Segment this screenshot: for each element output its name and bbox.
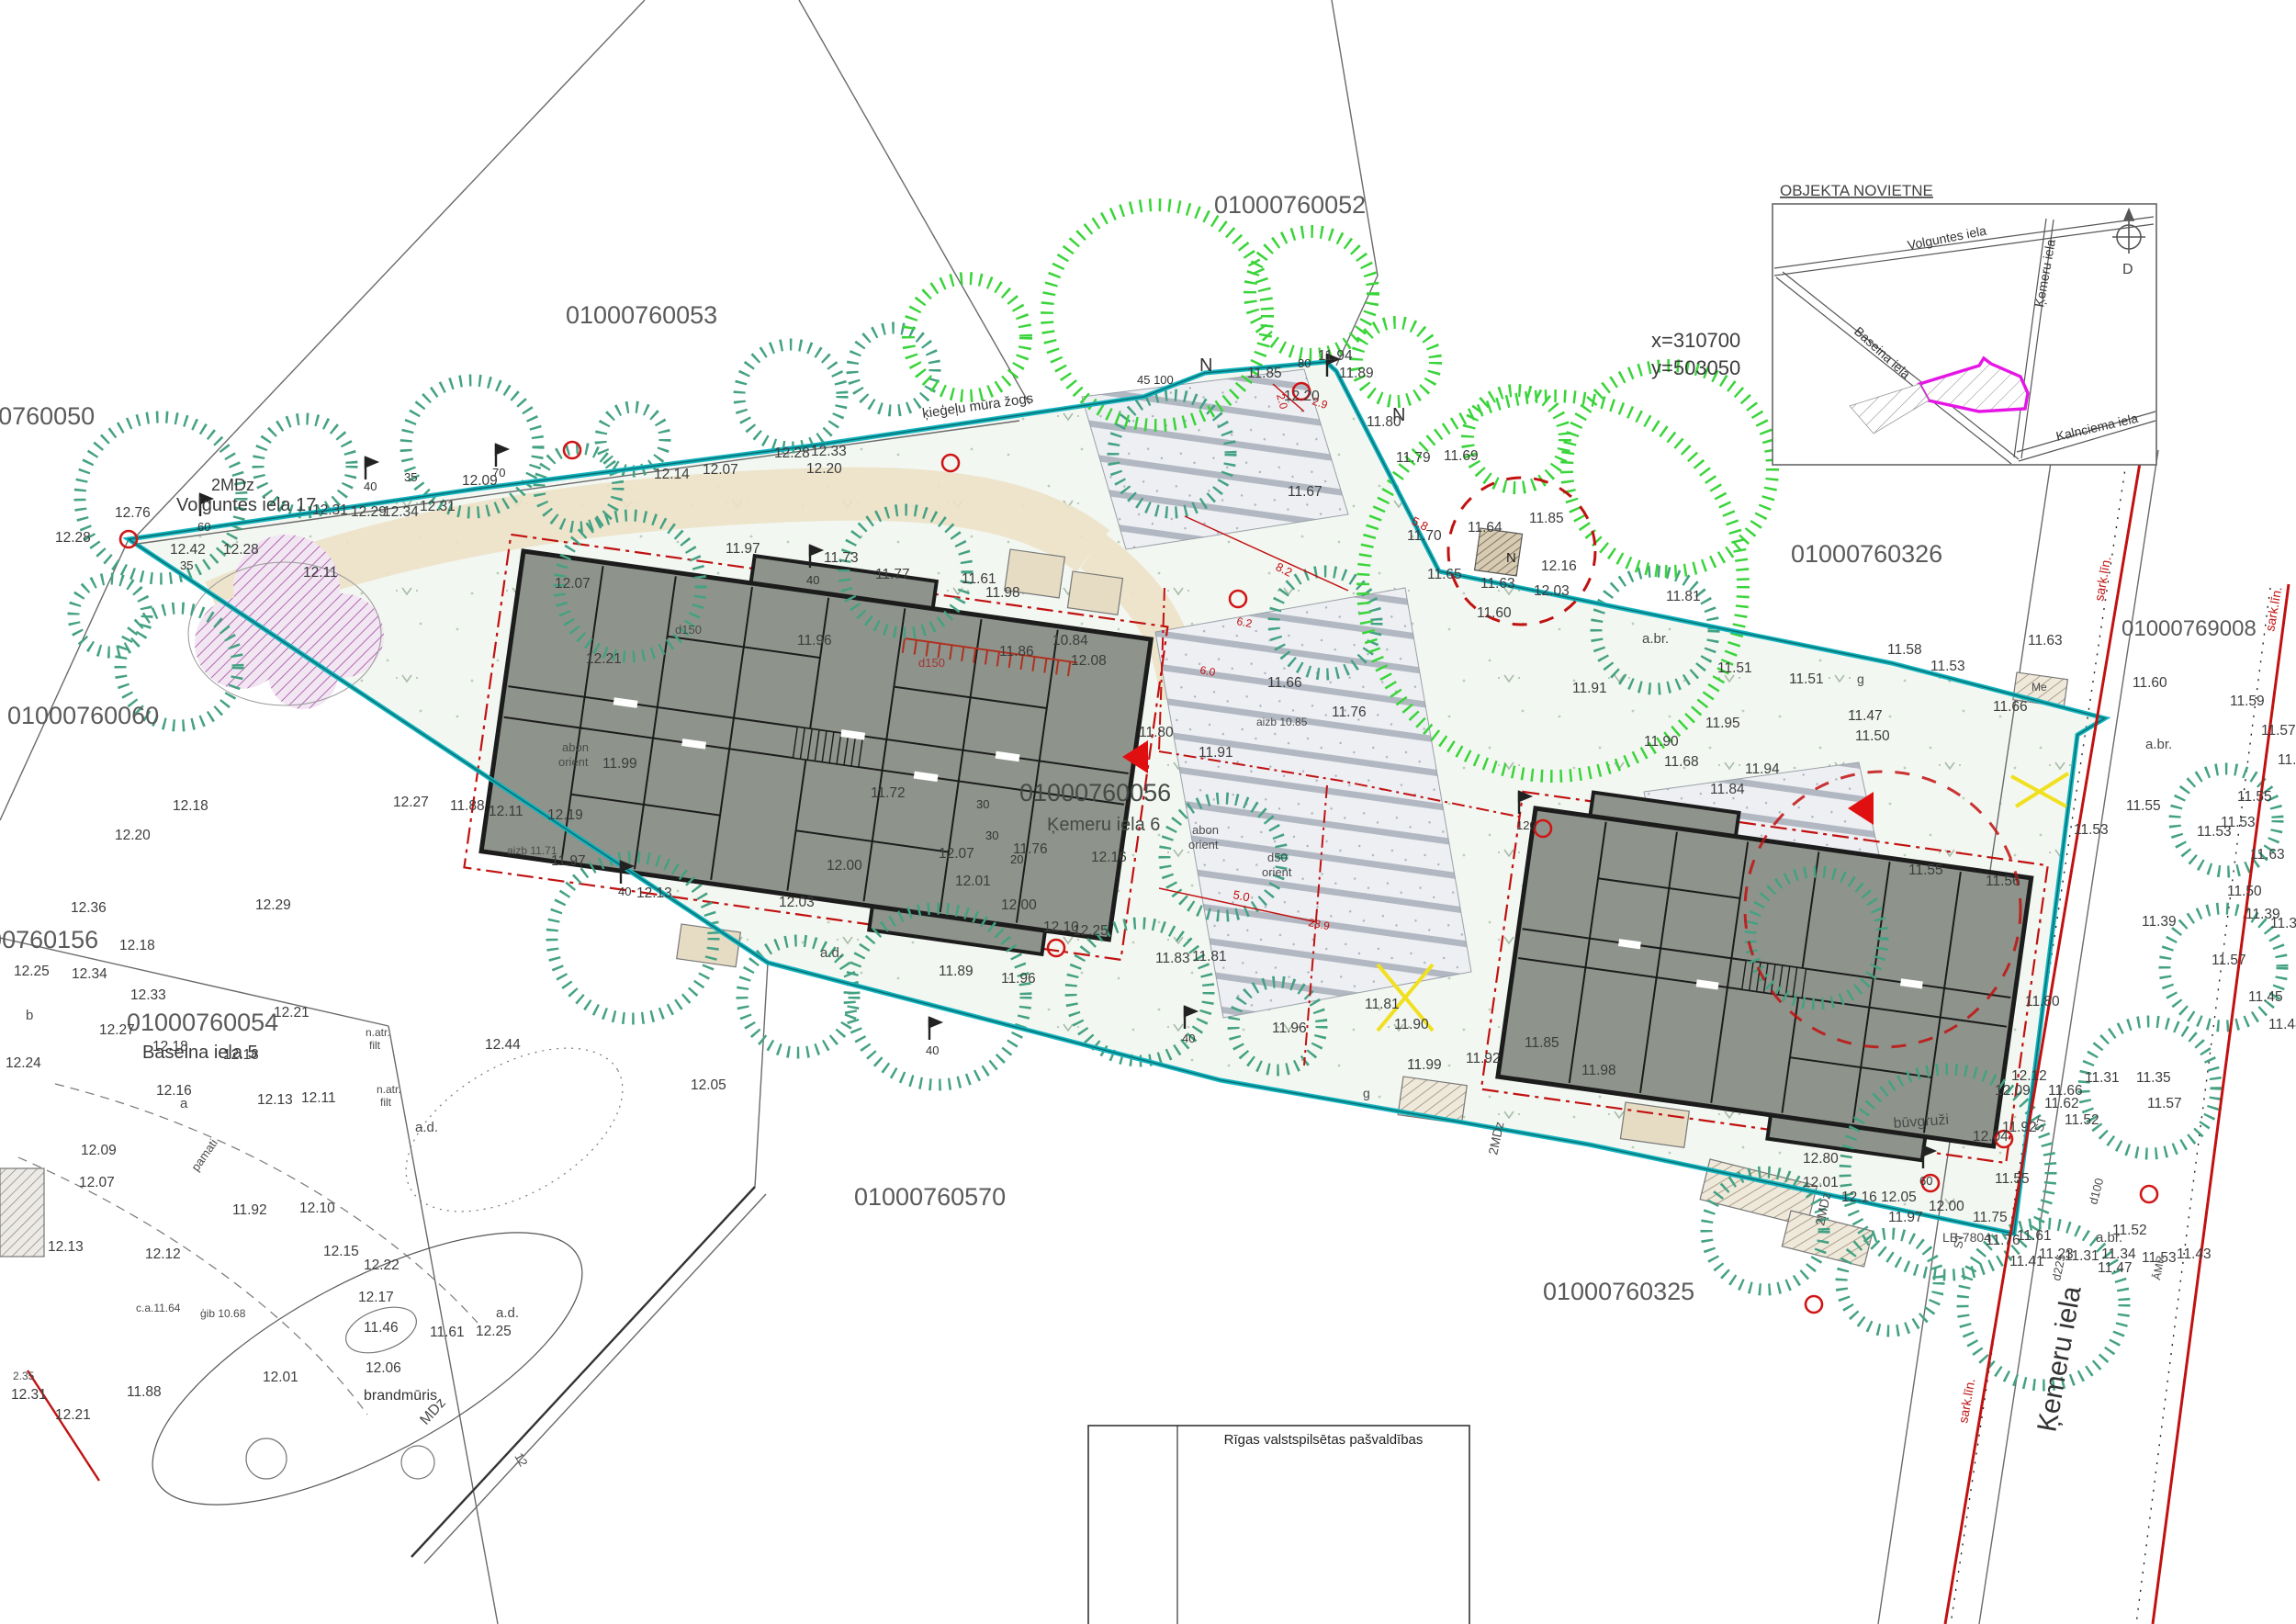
tree-tag-label: 35 <box>404 470 417 484</box>
elevation-label: 12.16 <box>1841 1190 1877 1205</box>
elevation-label: 11.43 <box>2177 1246 2212 1262</box>
elevation-label: 12.31 <box>420 499 456 514</box>
elevation-label: 11.47 <box>2098 1260 2133 1276</box>
tree-tag-label: 45 100 <box>1137 373 1174 387</box>
elevation-label: 12.05 <box>1881 1190 1917 1205</box>
elevation-label: 11.92 <box>1466 1051 1501 1066</box>
elevation-label: 11.83 <box>1155 951 1190 966</box>
main-parcel-address: Ķemeru iela 6 <box>1047 815 1160 835</box>
elevation-label: 11.97 <box>551 853 586 869</box>
elevation-label: 11.57 <box>2147 1096 2182 1111</box>
elevation-label: 12.33 <box>811 444 847 459</box>
elevation-label: 11.66 <box>1993 699 2028 715</box>
elevation-label: 11.51 <box>1717 660 1752 676</box>
annotation-label: 01000760325 <box>1543 1278 1694 1305</box>
elevation-label: 11.60 <box>1477 605 1512 621</box>
elevation-label: 11.57 <box>2261 723 2296 739</box>
elevation-label: 11.47 <box>1848 708 1883 724</box>
elevation-label: 11.67 <box>1288 484 1322 500</box>
elevation-label: 12.07 <box>79 1175 115 1190</box>
annotation-label: d150 <box>675 623 702 637</box>
elevation-label: 12.09 <box>81 1143 117 1158</box>
elevation-label: 12.28 <box>55 530 91 546</box>
elevation-label: 12.01 <box>955 874 991 889</box>
elevation-label: 11.56 <box>1986 874 2020 889</box>
compass-letter: D <box>2122 262 2133 277</box>
elevation-label: 11.64 <box>1468 520 1503 536</box>
elevation-label: 12.25 <box>1073 923 1109 939</box>
annotation-label: N <box>1506 550 1516 566</box>
elevation-label: 12.03 <box>779 895 815 910</box>
annotation-label: 01000769008 <box>2122 616 2257 641</box>
annotation-label: d100 <box>2086 1177 2106 1206</box>
elevation-label: 11.96 <box>1272 1021 1307 1036</box>
elevation-label: 12.76 <box>115 505 151 521</box>
tree-tag-label: 40 <box>364 479 377 493</box>
annotation-label: brandmūris <box>364 1388 437 1404</box>
elevation-label: 11.39 <box>2142 914 2177 930</box>
annotation-label: Me <box>2032 681 2047 694</box>
elevation-label: 11.69 <box>1444 448 1479 464</box>
tree-tag-label: 35 <box>180 558 193 572</box>
annotation-label: aizb 11.71 <box>507 844 557 857</box>
annotation-label: filt <box>380 1096 392 1109</box>
elevation-label: 11.85 <box>1529 511 1564 526</box>
annotation-label: orient <box>1188 838 1219 851</box>
elevation-label: 12.25 <box>476 1324 512 1339</box>
elevation-label: 11.89 <box>1339 366 1374 381</box>
elevation-label: 11.80 <box>1139 725 1174 740</box>
elevation-label: 11.96 <box>797 633 832 648</box>
elevation-label: 12.13 <box>48 1239 84 1255</box>
elevation-label: 11.63 <box>1480 576 1515 592</box>
elevation-label: 11.59 <box>2230 694 2265 709</box>
annotation-label: sark.līn. <box>2091 555 2113 602</box>
elevation-label: 11.72 <box>871 785 906 801</box>
annotation-label: n.atr. <box>366 1026 390 1039</box>
elevation-label: 11.63 <box>2028 633 2063 648</box>
annotation-label: ģib 10.68 <box>200 1307 246 1320</box>
elevation-label: 12.11 <box>489 804 523 819</box>
elevation-label: 12.29 <box>255 897 291 913</box>
elevation-label: 12.33 <box>130 987 166 1003</box>
title-block: Rīgas valstspilsētas pašvaldības <box>1088 1426 1469 1624</box>
elevation-label: 11.53 <box>1930 659 1965 674</box>
elevation-label: 11.89 <box>939 964 974 979</box>
elevation-label: 12.00 <box>1929 1199 1964 1214</box>
elevation-label: 12.17 <box>358 1290 394 1305</box>
survey-coordinates: x=310700 y=503050 <box>1651 329 1740 379</box>
elevation-label: 11.84 <box>1710 782 1745 797</box>
annotation-label: a.d. <box>496 1305 519 1321</box>
elevation-label: 11.65 <box>1427 567 1462 582</box>
elevation-label: 11.53 <box>2221 815 2256 830</box>
tree-tag-label: 40 <box>806 573 819 587</box>
annotation-label: pamati <box>188 1136 220 1174</box>
elevation-label: 11.31 <box>2065 1248 2099 1264</box>
elevation-label: 12.21 <box>274 1005 310 1021</box>
elevation-label: 11.97 <box>1888 1210 1923 1225</box>
elevation-label: 11.55 <box>1908 863 1943 878</box>
annotation-label: abon <box>1192 823 1219 837</box>
elevation-label: 11.55 <box>2126 798 2161 814</box>
elevation-label: 11.55 <box>2237 789 2272 805</box>
tree-tag-label: 40 <box>618 885 631 898</box>
elevation-label: 11.55 <box>1995 1171 2030 1187</box>
elevation-label: 11.99 <box>602 756 637 772</box>
elevation-label: 12.01 <box>1803 1175 1839 1190</box>
site-plan-canvas: OBJEKTA NOVIETNE D x=310700 y=503050 010… <box>0 0 2296 1624</box>
annotation-label: N <box>1199 355 1212 376</box>
elevation-label: 11.66 <box>1267 675 1302 691</box>
elevation-label: 11.61 <box>430 1325 465 1340</box>
elevation-label: 11.41 <box>2009 1254 2044 1269</box>
elevation-label: 12.00 <box>827 858 862 874</box>
elevation-label: 11.70 <box>1407 528 1442 544</box>
title-block-header: Rīgas valstspilsētas pašvaldības <box>1224 1432 1424 1448</box>
elevation-label: 11.95 <box>1705 716 1740 731</box>
elevation-label: 12.13 <box>636 885 672 901</box>
elevation-label: 12.16 <box>1541 558 1577 574</box>
elevation-label: 12.42 <box>170 542 206 558</box>
elevation-label: 11.76 <box>1986 1233 2020 1248</box>
annotation-label: 01000760054 <box>127 1009 278 1036</box>
annotation-label: a.br. <box>2145 737 2172 752</box>
elevation-label: 11.76 <box>1332 705 1367 720</box>
elevation-label: 10.84 <box>1052 633 1088 648</box>
elevation-label: 12.07 <box>555 576 591 592</box>
elevation-label: 12.36 <box>71 900 107 916</box>
coord-y: y=503050 <box>1651 356 1740 379</box>
annotation-label: aizb 10.85 <box>1256 716 1308 728</box>
elevation-label: 11.57 <box>2212 953 2246 968</box>
annotation-label: 01000760326 <box>1791 540 1942 568</box>
annotation-label: b <box>26 1008 33 1023</box>
annotation-label: LB-7804 <box>1942 1230 1991 1245</box>
elevation-label: 11.81 <box>1365 997 1400 1012</box>
elevation-label: 12.80 <box>1803 1151 1839 1167</box>
elevation-label: 12.08 <box>1071 653 1107 669</box>
elevation-label: 12.00 <box>1001 897 1037 913</box>
tree-tag-label: 30 <box>985 829 998 842</box>
elevation-label: 12.15 <box>323 1244 359 1259</box>
tree-tag-label: 40 <box>1182 1032 1195 1045</box>
elevation-label: 12.22 <box>364 1257 400 1273</box>
elevation-label: 12.44 <box>485 1037 521 1053</box>
elevation-label: 11.88 <box>127 1384 162 1400</box>
elevation-label: 11.58 <box>1887 642 1922 658</box>
elevation-label: 12.18 <box>152 1039 188 1054</box>
elevation-label: 12.19 <box>547 807 583 823</box>
elevation-label: 12.21 <box>55 1407 91 1423</box>
elevation-label: 12.28 <box>774 445 810 461</box>
elevation-label: 11.31 <box>2085 1070 2120 1086</box>
elevation-label: 12.27 <box>99 1022 135 1038</box>
elevation-label: 11.94 <box>1318 348 1353 364</box>
annotation-label: d50 <box>1267 851 1288 864</box>
inset-title: OBJEKTA NOVIETNE <box>1780 182 1933 199</box>
tree-tag-label: 20 <box>1010 852 1023 866</box>
elevation-label: 11.52 <box>2112 1223 2147 1238</box>
elevation-label: 11.45 <box>2248 989 2283 1005</box>
elevation-label: 12.05 <box>691 1077 726 1093</box>
elevation-label: 11.62 <box>2044 1096 2079 1111</box>
elevation-label: 11.36 <box>2270 916 2296 931</box>
elevation-label: 11.50 <box>2227 884 2262 899</box>
elevation-label: 11.94 <box>1745 761 1780 777</box>
elevation-label: 12.18 <box>119 938 155 953</box>
elevation-label: 12.20 <box>806 461 842 477</box>
elevation-label: 11.48 <box>2268 1017 2296 1032</box>
elevation-label: 12.28 <box>223 542 259 558</box>
elevation-label: 11.77 <box>875 567 910 582</box>
elevation-label: 11.35 <box>2136 1070 2171 1086</box>
elevation-label: 11.91 <box>1199 745 1233 761</box>
elevation-label: 12.12 <box>2011 1068 2047 1084</box>
elevation-label: 12.25 <box>14 964 50 979</box>
elevation-label: 12.20 <box>115 828 151 843</box>
tree-tag-label: 40 <box>926 1043 939 1057</box>
elevation-label: 11.92 <box>232 1202 267 1218</box>
elevation-label: 12.31 <box>11 1387 47 1403</box>
main-parcel-code: 01000760056 <box>1019 779 1171 806</box>
annotation-label: filt <box>369 1039 381 1052</box>
annotation-label: 2.35 <box>13 1370 35 1382</box>
tree-tag-label: 120 <box>1516 818 1536 832</box>
annotation-label: a.br. <box>1642 631 1669 647</box>
elevation-label: 11.53 <box>2142 1250 2177 1266</box>
elevation-label: 11.91 <box>1572 681 1607 696</box>
elevation-label: 12.29 <box>351 504 387 520</box>
elevation-label: 11.97 <box>726 541 760 557</box>
annotation-label: g <box>1857 671 1864 686</box>
annotation-label: orient <box>558 755 589 769</box>
annotation-label: d150 <box>918 656 945 670</box>
elevation-label: 11.98 <box>985 585 1020 601</box>
elevation-label: 11.52 <box>2065 1112 2099 1128</box>
elevation-label: 12.04 <box>1973 1129 2009 1145</box>
elevation-label: 11.79 <box>1396 450 1431 466</box>
elevation-label: 12.21 <box>586 651 622 667</box>
annotation-label: a.d. <box>820 945 843 961</box>
elevation-label: 11.50 <box>1855 728 1890 744</box>
elevation-label: 11.99 <box>1407 1057 1442 1073</box>
elevation-label: 12.31 <box>312 502 348 518</box>
site-plan-sheet: OBJEKTA NOVIETNE D x=310700 y=503050 010… <box>0 0 2296 1624</box>
elevation-label: 11.73 <box>824 550 859 566</box>
elevation-label: 11.81 <box>1666 589 1701 604</box>
annotation-label: sark.līn. <box>2262 585 2284 632</box>
annotation-label: Volguntes iela 17 <box>176 495 316 515</box>
elevation-label: 11.90 <box>1644 734 1679 750</box>
tree-tag-label: 60 <box>197 520 210 534</box>
annotation-label: c.a.11.64 <box>136 1302 181 1314</box>
elevation-label: 11.61 <box>2017 1228 2052 1244</box>
elevation-label: 11.98 <box>1581 1063 1616 1078</box>
elevation-label: 12.24 <box>6 1055 41 1071</box>
elevation-label: 12.34 <box>383 504 419 520</box>
annotation-label: abon <box>562 740 589 754</box>
elevation-label: 12.27 <box>393 795 429 810</box>
elevation-label: 11.53 <box>2074 822 2109 838</box>
elevation-label: 11.46 <box>364 1320 399 1336</box>
tree-tag-label: 30 <box>976 797 989 811</box>
annotation-label: 2MDz <box>211 476 254 494</box>
elevation-label: 12.20 <box>1284 389 1320 404</box>
elevation-label: 11.90 <box>1394 1017 1429 1032</box>
elevation-label: 12.12 <box>145 1246 181 1262</box>
elevation-label: 11.63 <box>2250 847 2285 863</box>
coord-x: x=310700 <box>1651 329 1740 352</box>
elevation-label: 12.03 <box>1534 583 1570 599</box>
elevation-label: 12.06 <box>366 1360 401 1376</box>
tree-tag-label: 70 <box>492 466 505 479</box>
annotation-label: a.d. <box>415 1120 438 1135</box>
elevation-label: 11.81 <box>1192 949 1227 964</box>
elevation-label: 11.60 <box>2133 675 2167 691</box>
annotation-label: 01000760060 <box>7 702 159 729</box>
elevation-label: 12.18 <box>173 798 208 814</box>
annotation-label: g <box>1363 1086 1370 1100</box>
elevation-label: 12.11 <box>303 565 338 581</box>
annotation-label: 01000760052 <box>1214 191 1366 219</box>
elevation-label: 12.16 <box>156 1083 192 1099</box>
elevation-label: 11.61 <box>962 571 996 587</box>
elevation-label: 12.14 <box>654 467 690 482</box>
annotation-label: 01000760156 <box>0 926 98 953</box>
elevation-label: 11.75 <box>1973 1210 2008 1225</box>
annotation-label: 01000760050 <box>0 402 95 430</box>
elevation-label: 11.85 <box>1525 1035 1559 1051</box>
elevation-label: 11.68 <box>1664 754 1699 770</box>
elevation-label: 12.16 <box>1091 850 1127 865</box>
elevation-label: 11.85 <box>1247 366 1282 381</box>
tree-tag-label: 60 <box>1919 1174 1932 1188</box>
elevation-label: 12.07 <box>703 462 738 478</box>
elevation-label: 11.96 <box>1001 971 1036 987</box>
elevation-label: 11.86 <box>999 644 1034 660</box>
elevation-label: 11.80 <box>1367 414 1401 430</box>
elevation-label: 12.07 <box>939 846 974 862</box>
elevation-label: 11.77 <box>2278 752 2296 768</box>
elevation-label: 11.88 <box>450 798 485 814</box>
elevation-label: 12.09 <box>1995 1083 2031 1099</box>
elevation-label: 12.34 <box>72 966 107 982</box>
elevation-label: 12.11 <box>301 1090 336 1106</box>
annotation-label: 01000760570 <box>854 1183 1006 1211</box>
elevation-label: 11.80 <box>2025 994 2060 1009</box>
annotation-label: sark.līn. <box>1955 1377 1977 1424</box>
annotation-label: 01000760053 <box>566 301 717 329</box>
elevation-label: 12.10 <box>299 1201 335 1216</box>
elevation-label: 12.13 <box>257 1092 293 1108</box>
elevation-label: 12.01 <box>263 1370 298 1385</box>
annotation-label: orient <box>1262 865 1292 879</box>
annotation-label: n.atr. <box>377 1083 401 1096</box>
tree-tag-label: 80 <box>1298 356 1311 370</box>
annotation-label: Ķemeru iela <box>2032 1284 2087 1435</box>
elevation-label: 11.51 <box>1789 671 1824 687</box>
elevation-label: 12.18 <box>223 1047 259 1063</box>
